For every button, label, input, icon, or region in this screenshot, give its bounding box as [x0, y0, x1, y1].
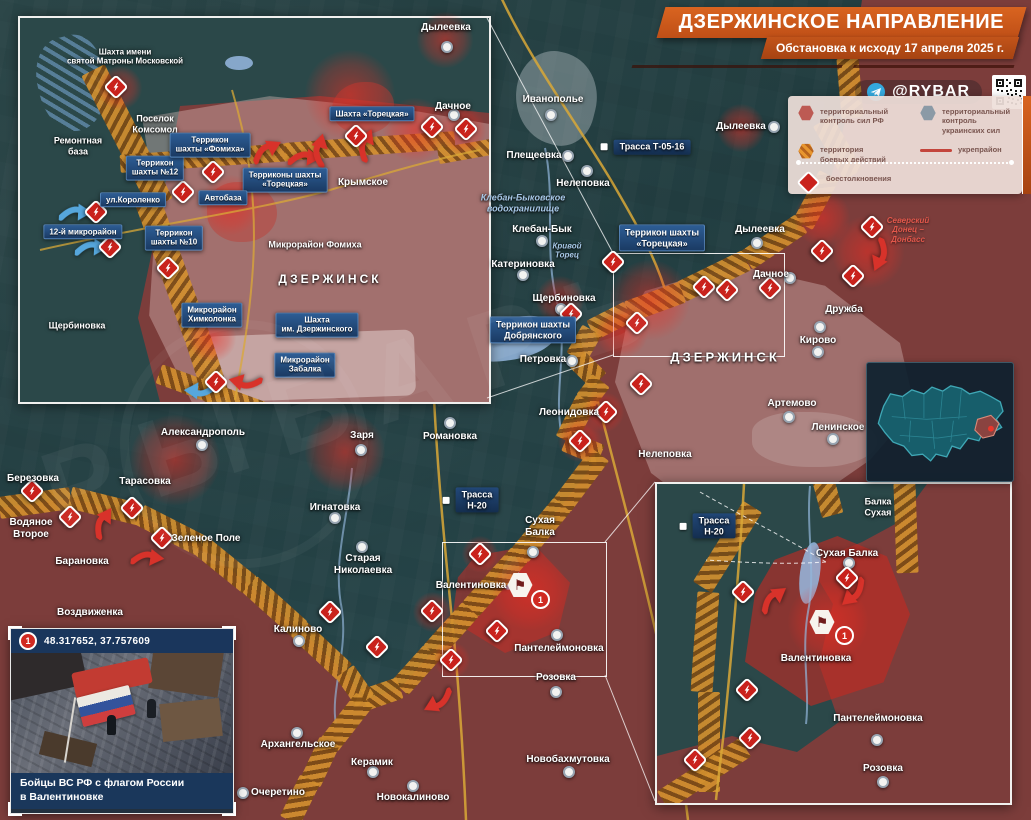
map-label-place: Иванополье — [523, 94, 584, 106]
inset-pond — [225, 56, 253, 70]
settlement-dot — [827, 433, 839, 445]
map-label-place: Старая Николаевка — [334, 553, 392, 577]
map-label-water: Кривой Торец — [552, 242, 581, 261]
soldier-figure — [147, 699, 156, 718]
legend-label: территориальный контроль сил РФ — [820, 105, 888, 126]
map-label-place: Тарасовка — [119, 476, 170, 488]
map-label-place: Дылеевка — [716, 121, 766, 133]
hex-striped-symbol — [798, 143, 814, 159]
settlement-dot — [356, 541, 368, 553]
legend-item: территория боевых действий — [798, 143, 916, 164]
clash-icon — [419, 598, 444, 623]
settlement-dot — [562, 150, 574, 162]
marker-number-badge: 1 — [835, 626, 854, 645]
photo-image — [11, 653, 233, 773]
settlement-dot — [536, 235, 548, 247]
photo-header: 1 48.317652, 37.757609 — [11, 629, 233, 653]
legend-label: боестолкновения — [826, 172, 891, 183]
legend-side-strip — [1022, 96, 1031, 194]
settlement-dot — [355, 444, 367, 456]
title-underline — [632, 65, 1015, 68]
combat-heat-spot — [130, 415, 220, 505]
map-label-place: Нелеповка — [556, 178, 609, 190]
settlement-dot — [237, 787, 249, 799]
combat-zone-hatch — [693, 501, 762, 593]
map-canvas[interactable]: РЫБАРЬ ДЗЕРЖИНСКОЕ НАПРАВЛЕНИЕ Обстановк… — [0, 0, 1031, 820]
photo-corner-bracket — [8, 802, 22, 816]
legend-frontline-motif — [802, 162, 1008, 164]
page-title: ДЗЕРЖИНСКОЕ НАПРАВЛЕНИЕ — [661, 7, 1022, 38]
ukraine-outline — [873, 374, 1007, 470]
subtitle-text: Обстановка к исходу 17 апреля 2025 г. — [776, 41, 1004, 55]
map-label-infrastructure: Террикон шахты «Торецкая» — [619, 224, 705, 251]
settlement-dot — [517, 269, 529, 281]
combat-heat-spot — [305, 412, 385, 492]
legend-item: боестолкновения — [798, 172, 916, 191]
ukraine-minimap — [866, 362, 1014, 482]
settlement-dot — [814, 321, 826, 333]
legend-label: территория боевых действий — [820, 143, 886, 164]
map-label-road: Трасса Н-20 — [456, 487, 499, 512]
marker-number-badge: 1 — [531, 590, 550, 609]
map-label-place: Заря — [350, 430, 374, 442]
settlement-dot — [329, 512, 341, 524]
combat-zone-hatch — [811, 482, 844, 518]
settlement-dot — [550, 686, 562, 698]
map-label-place: Романовка — [423, 431, 477, 443]
valentinovka-zoom-frame — [442, 542, 607, 677]
settlement-dot — [527, 546, 539, 558]
map-area-marker — [988, 426, 994, 432]
settlement-dot — [768, 121, 780, 133]
legend-panel: территориальный контроль сил РФтерритори… — [788, 96, 1022, 194]
settlement-dot — [448, 109, 460, 121]
settlement-dot — [293, 635, 305, 647]
settlement-dot — [563, 766, 575, 778]
photo-corner-bracket — [222, 802, 236, 816]
settlement-dot — [367, 766, 379, 778]
ivanopolye-urban-area — [505, 43, 607, 152]
settlement-dot — [551, 629, 563, 641]
legend-label: укрепрайон — [958, 143, 1002, 154]
settlement-dot — [784, 272, 796, 284]
inset-valentinovka — [655, 482, 1012, 805]
settlement-dot — [441, 41, 453, 53]
title-banner: ДЗЕРЖИНСКОЕ НАПРАВЛЕНИЕ Обстановка к исх… — [626, 7, 1026, 109]
subtitle: Обстановка к исходу 17 апреля 2025 г. — [764, 37, 1016, 59]
settlement-dot — [291, 727, 303, 739]
soldier-figure — [107, 715, 116, 735]
map-label-road: Трасса Т-05-16 — [614, 140, 691, 155]
hex-red-symbol — [798, 105, 814, 121]
dzerzhinsk-zoom-frame — [613, 253, 785, 357]
settlement-dot — [871, 734, 883, 746]
wood-debris — [159, 698, 223, 742]
hex-gray-symbol — [920, 105, 936, 121]
settlement-dot — [545, 109, 557, 121]
diamond-lightning-symbol — [796, 170, 820, 194]
settlement-dot — [444, 417, 456, 429]
line-red-symbol — [920, 149, 952, 152]
photo-inset: 1 48.317652, 37.757609 Бойцы ВС РФ с фла… — [10, 628, 234, 814]
clash-icon — [364, 634, 389, 659]
combat-zone-hatch — [691, 591, 720, 692]
settlement-dot — [783, 411, 795, 423]
map-label-place: Александрополь — [161, 427, 245, 439]
map-label-water: Клебан-Быковское водохранилище — [481, 192, 566, 213]
combat-heat-spot — [717, 104, 765, 152]
legend-label: территориальный контроль украинских сил — [942, 105, 1016, 135]
settlement-dot — [566, 355, 578, 367]
settlement-dot — [877, 776, 889, 788]
combat-zone-hatch — [893, 483, 918, 574]
legend-item: территориальный контроль украинских сил — [920, 105, 1016, 135]
settlement-dot — [407, 780, 419, 792]
photo-corner-bracket — [222, 626, 236, 640]
clash-icon — [317, 599, 342, 624]
photo-corner-bracket — [8, 626, 22, 640]
photo-caption: Бойцы ВС РФ с флагом России в Валентинов… — [11, 773, 233, 809]
settlement-dot — [751, 237, 763, 249]
legend-item: укрепрайон — [920, 143, 1016, 164]
settlement-dot — [812, 346, 824, 358]
legend-item: территориальный контроль сил РФ — [798, 105, 916, 135]
map-label-place: Плещеевка — [506, 150, 561, 162]
photo-coordinates: 48.317652, 37.757609 — [44, 636, 150, 647]
settlement-dot — [196, 439, 208, 451]
settlement-dot — [581, 165, 593, 177]
title-text: ДЗЕРЖИНСКОЕ НАПРАВЛЕНИЕ — [679, 11, 1004, 33]
sukhaya-balka-pond — [796, 541, 824, 605]
